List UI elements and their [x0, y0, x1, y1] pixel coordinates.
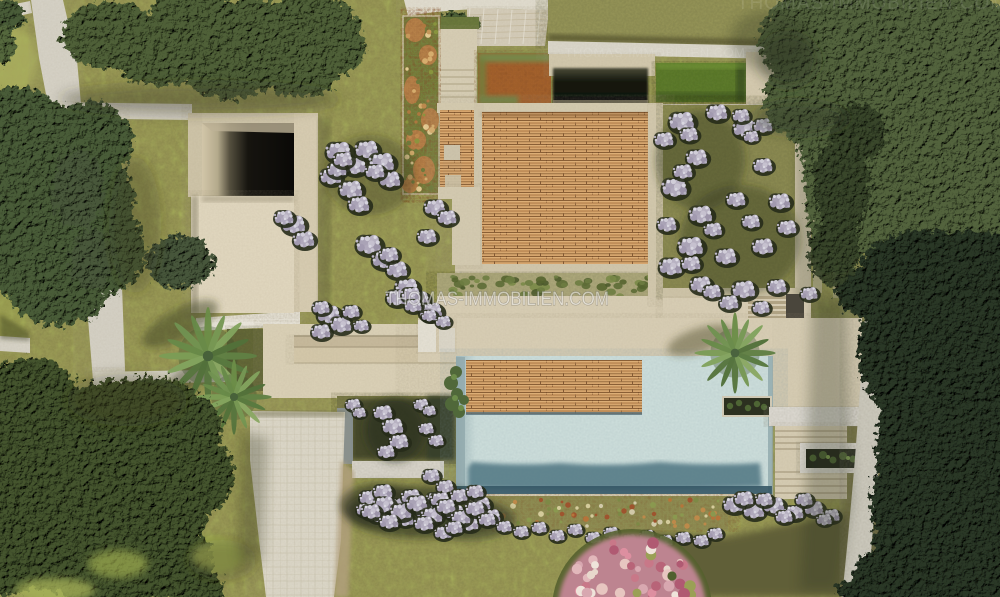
svg-text:THOMAS-IMMOBILIEN.COM: THOMAS-IMMOBILIEN.COM	[565, 45, 746, 60]
svg-text:THOMAS-IMMOBILIEN.COM: THOMAS-IMMOBILIEN.COM	[737, 0, 1000, 14]
svg-text:THOMAS-IMMOBILIEN.COM: THOMAS-IMMOBILIEN.COM	[385, 288, 609, 310]
